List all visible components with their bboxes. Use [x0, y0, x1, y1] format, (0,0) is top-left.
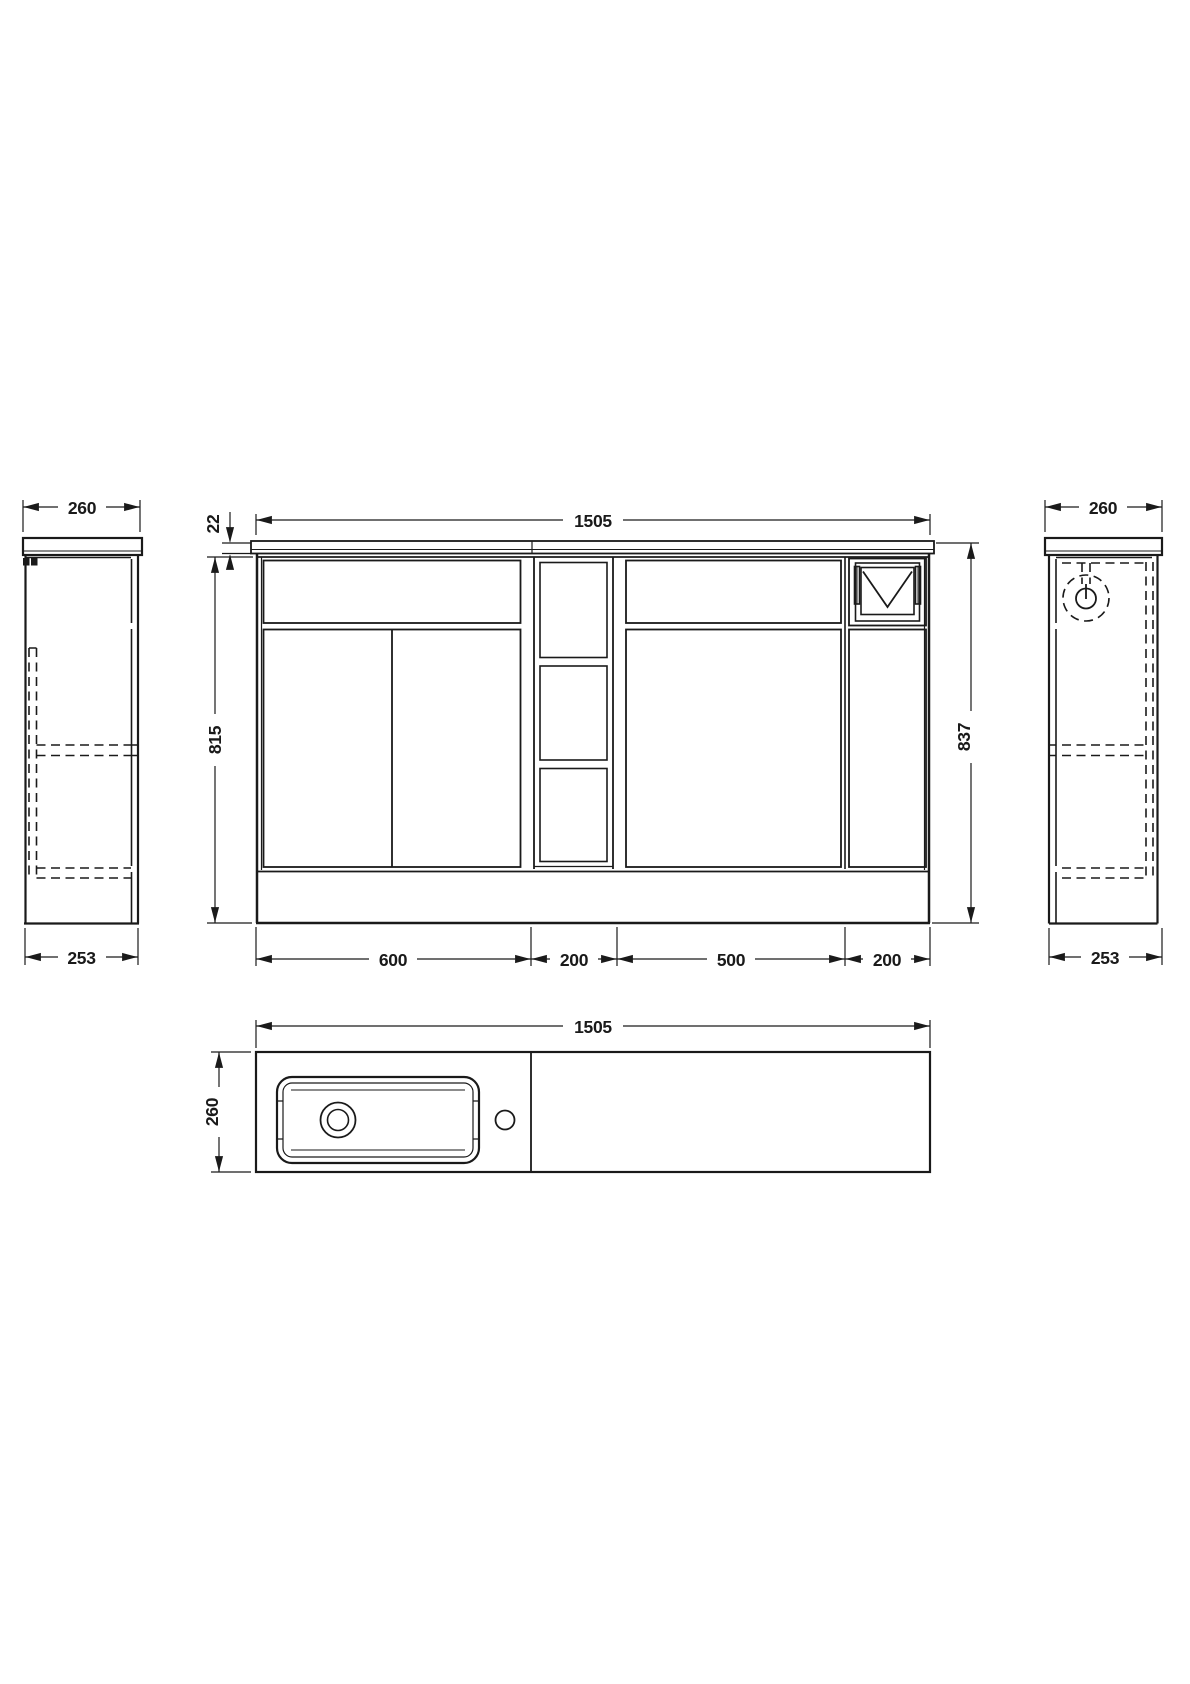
- dimension-label: 815: [205, 725, 225, 754]
- vanity-unit-drawing: 260: [0, 0, 1190, 1684]
- dimension-label: 600: [379, 950, 408, 970]
- worktop: [251, 541, 934, 554]
- dim-front-overall-width: 1505: [256, 510, 930, 535]
- module-200-open-shelf-column: [534, 557, 613, 869]
- basin: [277, 1077, 479, 1163]
- open-shelf-bottom: [540, 769, 607, 862]
- dimension-label: 837: [954, 723, 974, 751]
- dim-cabinet-height: 815: [205, 557, 253, 923]
- dimension-label: 253: [1091, 948, 1120, 968]
- flush-button-icon: [1063, 563, 1109, 621]
- dimension-label: 260: [202, 1097, 222, 1126]
- plan-view: 1505 260: [202, 1016, 930, 1172]
- worktop-profile: [23, 538, 142, 555]
- dimension-label: 200: [560, 950, 589, 970]
- worktop-plan: [256, 1052, 930, 1172]
- dimension-label: 260: [68, 498, 97, 518]
- dimension-label: 1505: [574, 511, 612, 531]
- open-shelf-top: [540, 563, 607, 658]
- module-200-wc-unit: [845, 557, 926, 869]
- dim-total-height: 837: [932, 543, 979, 923]
- dim-left-depth: 253: [25, 928, 138, 968]
- hidden-bottom-dashed: [1062, 868, 1146, 878]
- dimension-label: 1505: [574, 1017, 612, 1037]
- module-500-door-unit: [626, 561, 841, 868]
- dim-plan-width: 1505: [256, 1016, 930, 1048]
- hidden-back-panel-dashed: [29, 648, 37, 876]
- waste-drain-icon: [321, 1103, 356, 1138]
- tap-hole: [496, 1111, 515, 1130]
- dimension-label: 200: [873, 950, 902, 970]
- drawer-front-500: [626, 561, 841, 624]
- front-elevation-view: 1505 22 815: [203, 509, 979, 970]
- module-600-basin-unit: [264, 561, 521, 868]
- dimension-label: 260: [1089, 498, 1118, 518]
- dim-front-modules: 600 200 500 200: [256, 927, 930, 970]
- hidden-bottom-dashed: [37, 868, 132, 878]
- dim-right-depth: 253: [1049, 928, 1162, 968]
- worktop-profile: [1045, 538, 1162, 555]
- open-shelf-middle: [540, 666, 607, 760]
- chevron-v-icon: [863, 572, 912, 608]
- dimension-label: 253: [67, 948, 96, 968]
- dim-plan-depth: 260: [202, 1052, 251, 1172]
- technical-drawing-page: 260: [0, 0, 1190, 1684]
- dimension-label: 500: [717, 950, 746, 970]
- right-side-view: 260: [1045, 497, 1162, 968]
- hidden-cistern-dashed: [1062, 562, 1153, 878]
- drawer-front-600: [264, 561, 521, 624]
- wc-front-panel: [849, 630, 926, 868]
- dim-right-width: 260: [1045, 497, 1162, 532]
- left-side-view: 260: [23, 497, 142, 968]
- hinge-block: [23, 558, 38, 566]
- door-500: [626, 630, 841, 868]
- hidden-shelf-dashed: [1049, 745, 1146, 756]
- dimension-label: 22: [203, 514, 223, 533]
- dim-left-width: 260: [23, 497, 140, 532]
- hidden-shelf-dashed: [37, 745, 139, 756]
